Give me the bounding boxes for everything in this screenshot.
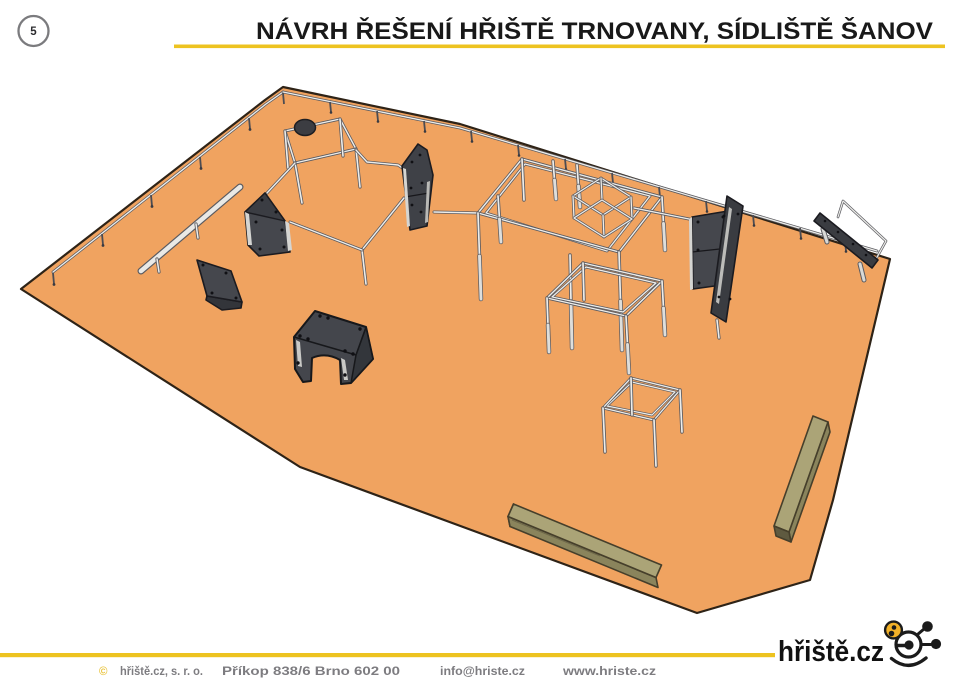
svg-text:Příkop 838/6 Brno 602 00: Příkop 838/6 Brno 602 00: [222, 666, 400, 678]
svg-text:hřiště.cz: hřiště.cz: [778, 636, 884, 668]
svg-text:info@hriste.cz: info@hriste.cz: [440, 666, 525, 678]
svg-text:©: ©: [99, 666, 108, 678]
svg-text:5: 5: [30, 26, 37, 38]
svg-text:NÁVRH ŘEŠENÍ HŘIŠTĚ TRNOVANY,: NÁVRH ŘEŠENÍ HŘIŠTĚ TRNOVANY, SÍDLIŠTĚ Š…: [256, 17, 934, 45]
svg-text:hřiště.cz, s. r. o.: hřiště.cz, s. r. o.: [120, 666, 203, 678]
svg-text:www.hriste.cz: www.hriste.cz: [562, 666, 657, 678]
